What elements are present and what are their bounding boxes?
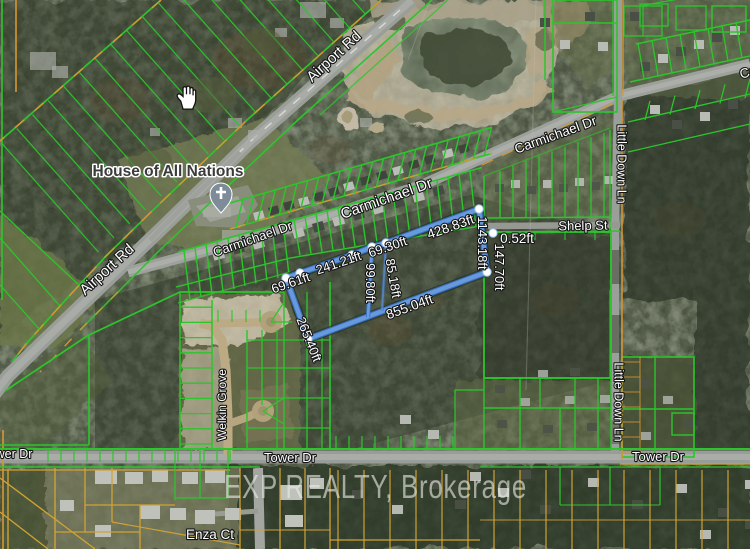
svg-text:EXP REALTY, Brokerage: EXP REALTY, Brokerage xyxy=(224,468,527,505)
svg-text:Welkin Grove: Welkin Grove xyxy=(215,369,229,441)
svg-text:Tower Dr: Tower Dr xyxy=(264,450,317,465)
svg-text:Little Down Ln: Little Down Ln xyxy=(612,362,626,441)
svg-text:House of All Nations: House of All Nations xyxy=(93,163,244,180)
svg-text:0.52ft: 0.52ft xyxy=(500,231,534,246)
svg-text:Enza Ct: Enza Ct xyxy=(186,527,234,542)
svg-text:1143.18ft: 1143.18ft xyxy=(475,216,490,270)
svg-text:Little Down Ln: Little Down Ln xyxy=(615,124,629,203)
svg-text:99.80ft: 99.80ft xyxy=(363,263,378,303)
svg-text:wer Dr: wer Dr xyxy=(0,447,32,461)
svg-text:Shelp St: Shelp St xyxy=(558,218,608,234)
svg-text:Tower Dr: Tower Dr xyxy=(632,449,685,464)
svg-text:147.70ft: 147.70ft xyxy=(492,244,507,291)
